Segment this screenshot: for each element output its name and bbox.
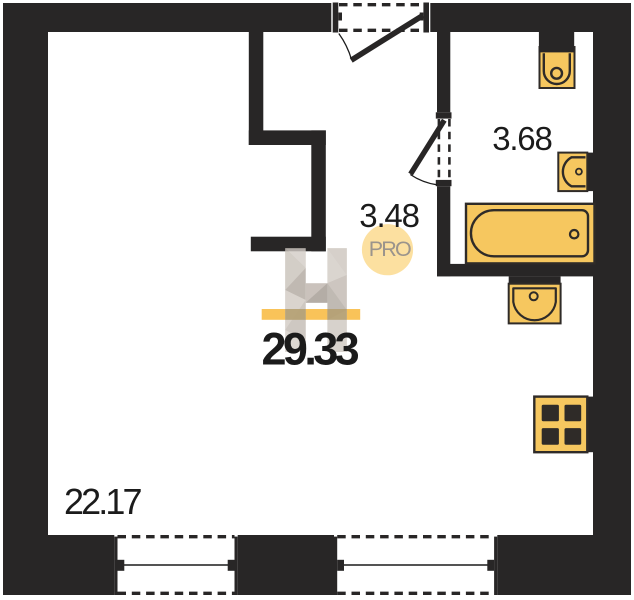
svg-text:PRO: PRO bbox=[369, 237, 411, 261]
svg-text:3.68: 3.68 bbox=[492, 120, 551, 157]
svg-text:3.48: 3.48 bbox=[359, 197, 418, 234]
svg-text:29.33: 29.33 bbox=[262, 323, 359, 374]
svg-text:22.17: 22.17 bbox=[64, 481, 141, 522]
